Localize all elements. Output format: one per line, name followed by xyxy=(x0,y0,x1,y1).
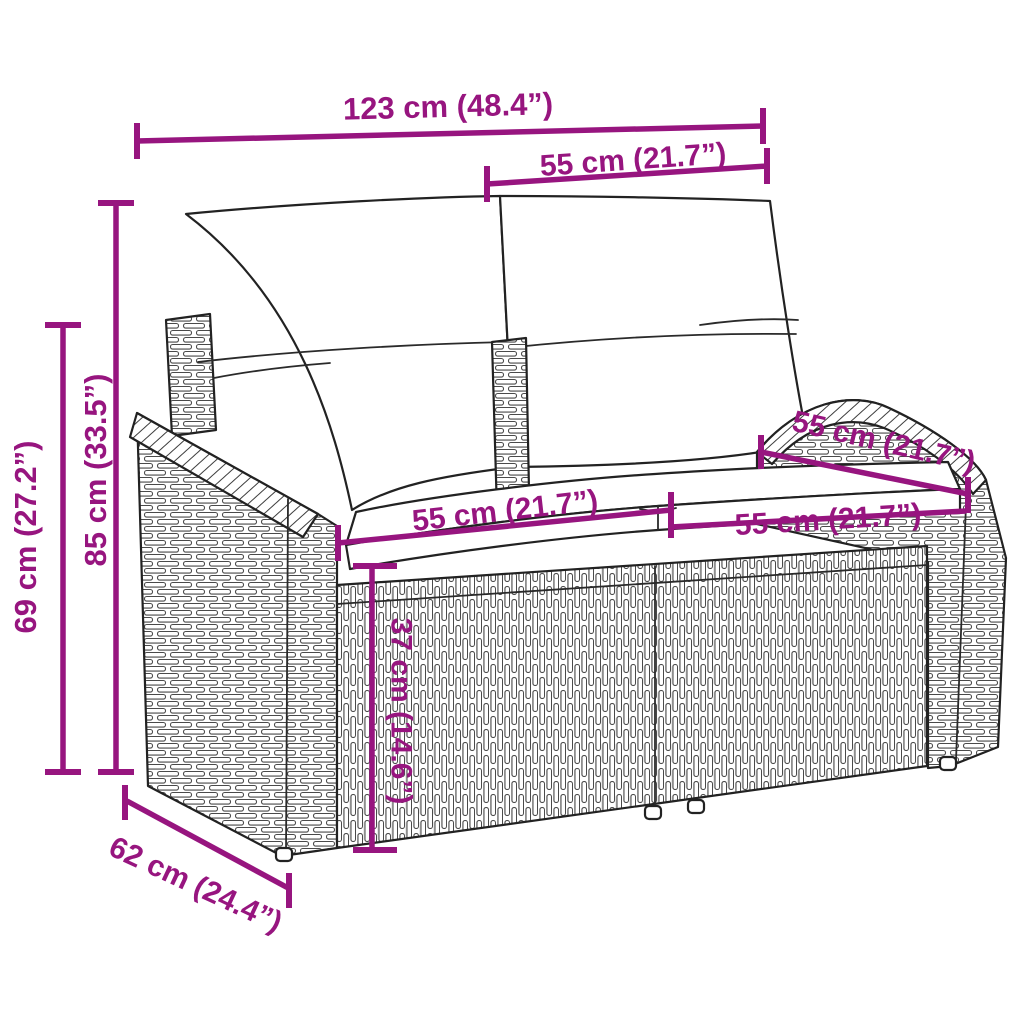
foot xyxy=(688,800,704,813)
back-cushion-right-body xyxy=(500,196,808,467)
foot xyxy=(940,757,956,770)
seat-base xyxy=(337,546,927,848)
foot xyxy=(276,848,292,861)
dim-label: 69 cm (27.2”) xyxy=(8,441,43,634)
back-cushion-left-body xyxy=(186,196,514,510)
seat-base-front xyxy=(337,546,927,848)
back-cushion-left xyxy=(186,196,514,510)
dimension-diagram-svg: 123 cm (48.4”) 55 cm (21.7”) 85 cm (33.5… xyxy=(0,0,1024,1024)
dim-line xyxy=(137,126,763,141)
dim-armrest-height: 69 cm (27.2”) xyxy=(8,325,81,772)
dim-backrest-cushion-width: 55 cm (21.7”) xyxy=(487,137,767,202)
dim-label: 62 cm (24.4”) xyxy=(104,830,287,939)
back-post-left xyxy=(166,314,216,436)
dim-label: 85 cm (33.5”) xyxy=(78,374,113,567)
back-cushion-right xyxy=(500,196,808,467)
dim-total-height: 85 cm (33.5”) xyxy=(78,203,134,772)
product-dimension-diagram: 123 cm (48.4”) 55 cm (21.7”) 85 cm (33.5… xyxy=(0,0,1024,1024)
dim-label: 37 cm (14.6”) xyxy=(385,618,418,805)
armrest-left xyxy=(130,413,337,856)
dim-label: 123 cm (48.4”) xyxy=(342,86,553,126)
dim-label: 55 cm (21.7”) xyxy=(539,137,728,183)
foot xyxy=(645,806,661,819)
